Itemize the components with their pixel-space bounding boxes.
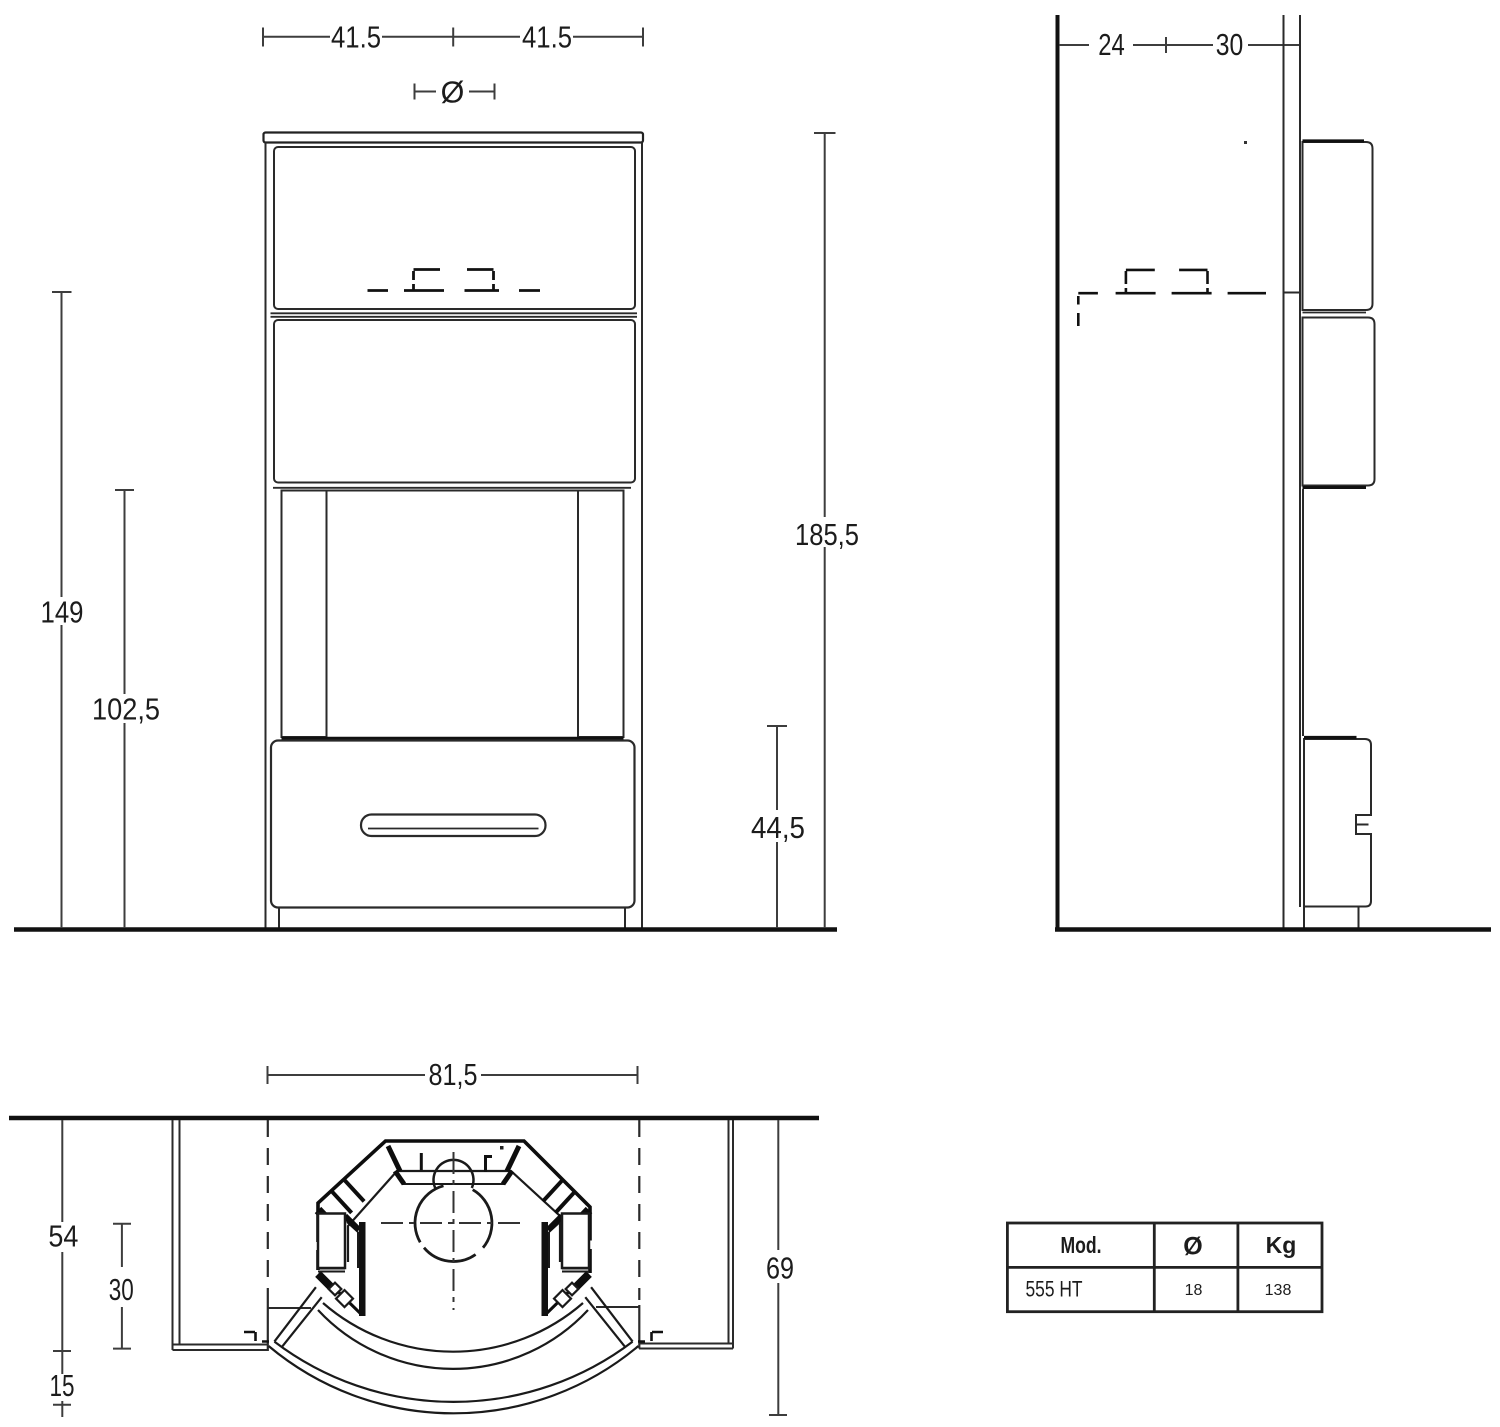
svg-text:Ø: Ø xyxy=(441,76,465,110)
svg-text:15: 15 xyxy=(50,1369,75,1403)
svg-text:Mod.: Mod. xyxy=(1061,1232,1102,1258)
svg-text:41.5: 41.5 xyxy=(331,21,381,55)
svg-text:Ø: Ø xyxy=(1183,1233,1202,1261)
svg-text:44,5: 44,5 xyxy=(751,811,805,845)
svg-text:Kg: Kg xyxy=(1266,1232,1297,1258)
svg-text:138: 138 xyxy=(1265,1282,1292,1299)
svg-text:24: 24 xyxy=(1098,28,1125,62)
svg-text:149: 149 xyxy=(41,596,84,630)
svg-text:41.5: 41.5 xyxy=(522,21,572,55)
svg-text:69: 69 xyxy=(766,1252,794,1286)
svg-text:555 HT: 555 HT xyxy=(1026,1277,1083,1302)
svg-text:81,5: 81,5 xyxy=(429,1058,478,1092)
svg-text:18: 18 xyxy=(1185,1282,1203,1299)
svg-text:185,5: 185,5 xyxy=(795,518,859,552)
svg-text:102,5: 102,5 xyxy=(92,693,160,727)
svg-text:30: 30 xyxy=(109,1273,134,1307)
svg-text:54: 54 xyxy=(48,1220,78,1254)
svg-text:30: 30 xyxy=(1216,28,1244,62)
